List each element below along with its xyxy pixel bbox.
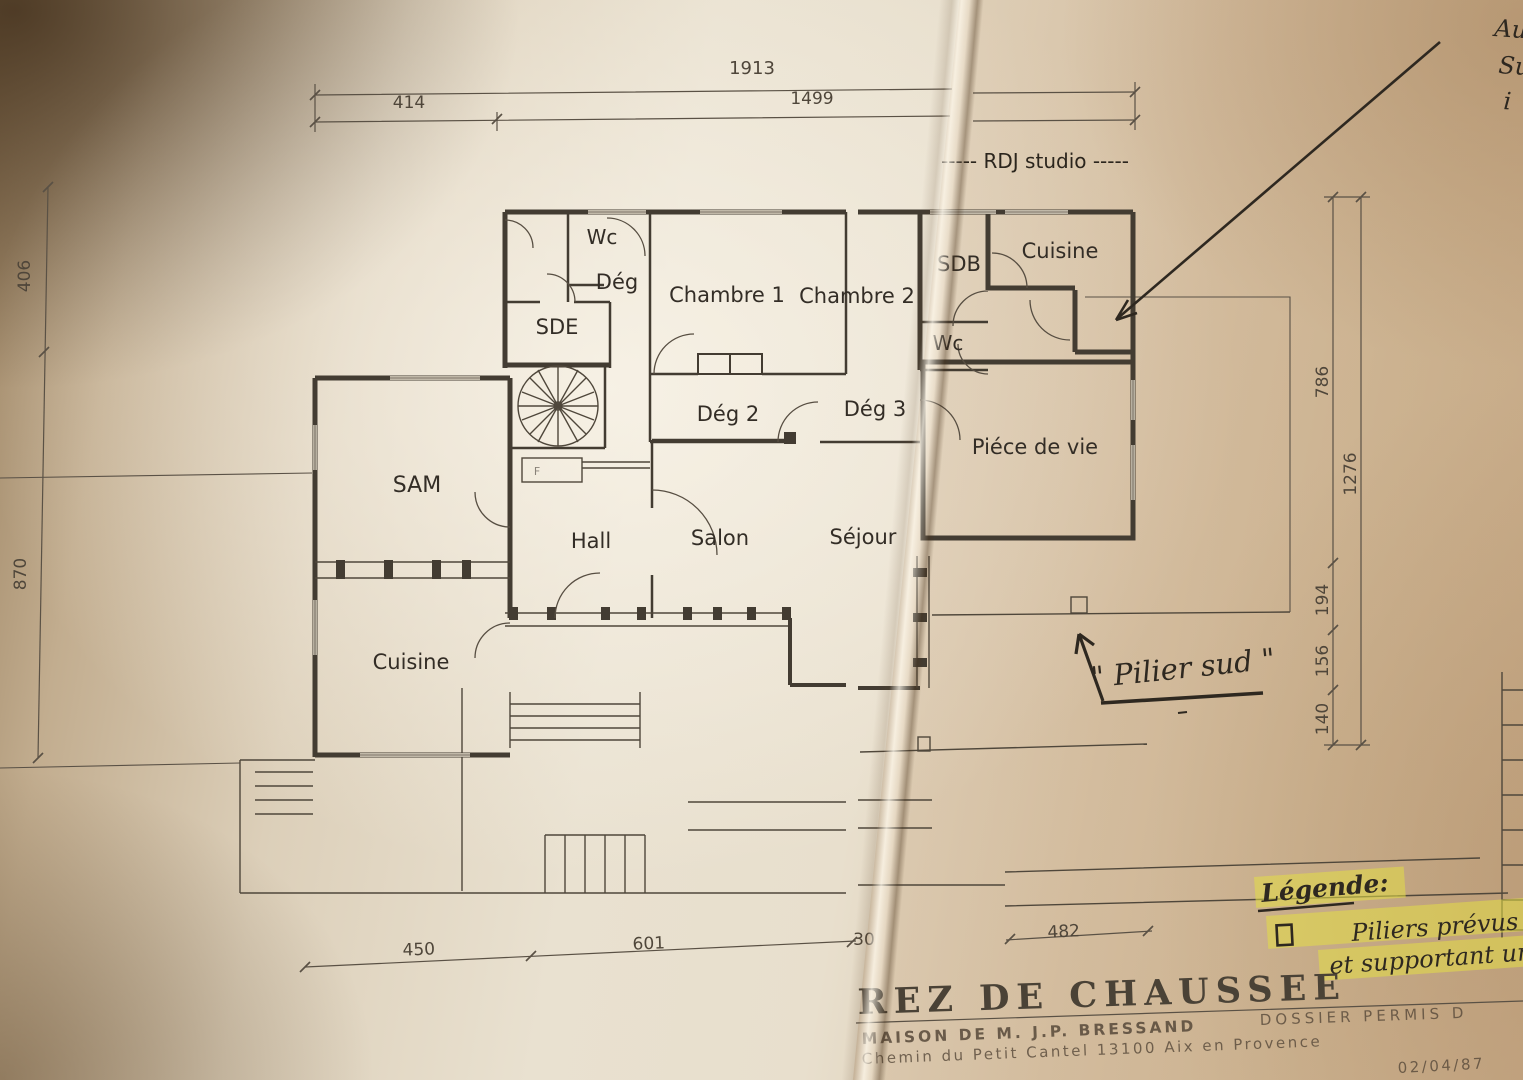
room-label-piece-de-vie: Piéce de vie (972, 435, 1098, 459)
room-label-deg3: Dég 3 (844, 397, 906, 421)
corner-note-line2: Su (1498, 51, 1523, 81)
pilier-sud-note: " Pilier sud " (1089, 641, 1276, 694)
dim-bottom-1: 450 (402, 939, 435, 960)
floor-plan-drawing: Wc Dég Chambre 1 Chambre 2 SDB Cuisine S… (0, 0, 1523, 1080)
title-block: REZ DE CHAUSSEE MAISON DE M. J.P. BRESSA… (856, 967, 1523, 1077)
pilier-underline (1101, 693, 1263, 703)
room-label-chambre2: Chambre 2 (799, 284, 915, 308)
dim-left-upper: 406 (15, 260, 35, 292)
studio-header-label: ----- RDJ studio ----- (941, 149, 1129, 173)
room-labels: Wc Dég Chambre 1 Chambre 2 SDB Cuisine S… (373, 149, 1129, 674)
south-pillar-marker (1071, 597, 1087, 613)
corner-note-line3: i (1503, 87, 1513, 115)
room-label-sejour: Séjour (830, 525, 897, 549)
room-label-sdb: SDB (937, 252, 981, 276)
room-label-sde: SDE (536, 315, 579, 339)
room-label-wc-studio: Wc (933, 331, 964, 355)
room-label-deg: Dég (596, 270, 638, 294)
legende-title: Légende: (1259, 868, 1390, 908)
dim-right-seg2: 194 (1313, 584, 1333, 616)
room-label-chambre1: Chambre 1 (669, 283, 785, 307)
stair-box-label: F (534, 465, 540, 478)
room-label-salon: Salon (691, 526, 749, 550)
floor-plan-photo: Wc Dég Chambre 1 Chambre 2 SDB Cuisine S… (0, 0, 1523, 1080)
handwritten-annotations: Au Su i " Pilier sud " Légende: Piliers … (1076, 14, 1523, 981)
date-label: 02/04/87 (1397, 1054, 1485, 1077)
room-label-wc-top: Wc (587, 225, 618, 249)
room-label-deg2: Dég 2 (697, 402, 759, 426)
dim-top-left: 414 (393, 93, 425, 113)
corner-arrow-line (1118, 42, 1440, 318)
dim-right-seg1: 786 (1313, 366, 1333, 398)
dim-right-total: 1276 (1341, 452, 1361, 495)
dim-left-lower: 870 (11, 558, 31, 590)
dim-bottom-4: 482 (1047, 921, 1080, 943)
site-and-terrace-lines (0, 297, 1523, 938)
dim-top-total: 1913 (729, 58, 775, 79)
room-label-sam: SAM (393, 473, 441, 498)
dim-top-right: 1499 (790, 89, 833, 109)
pilier-dash (1178, 712, 1187, 713)
dimension-lines-top (310, 82, 1140, 132)
room-label-cuisine-main: Cuisine (373, 650, 450, 674)
corner-note-line1: Au (1492, 14, 1523, 44)
spiral-staircase (518, 366, 598, 446)
dim-right-seg4: 140 (1313, 703, 1333, 735)
dim-bottom-2: 601 (632, 933, 665, 954)
dimension-line-left (33, 182, 53, 763)
dim-right-seg3: 156 (1313, 645, 1333, 677)
room-label-hall: Hall (571, 529, 611, 553)
dim-bottom-3: 30 (853, 930, 875, 950)
room-label-cuisine-studio: Cuisine (1022, 239, 1099, 263)
dimension-labels: 1913 414 1499 406 870 786 1276 194 156 1… (11, 58, 1361, 961)
